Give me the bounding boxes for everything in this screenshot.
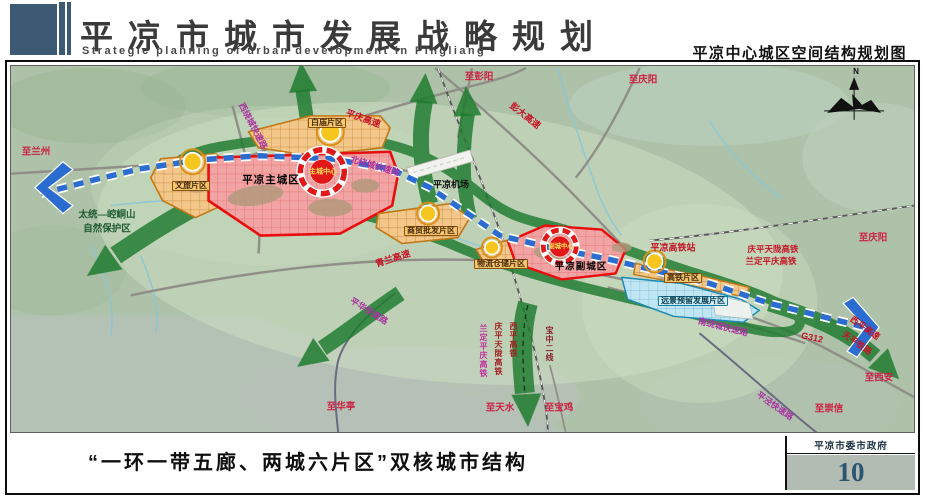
district-label-wuliu: 物流仓储片区 — [474, 259, 528, 269]
agency-label: 平凉市委市政府 — [787, 436, 915, 454]
district-label-shangmao: 商贸批发片区 — [404, 226, 458, 236]
node — [417, 203, 439, 225]
district-label-baimiao: 白庙片区 — [308, 118, 346, 128]
page-number: 10 — [787, 455, 915, 491]
node — [180, 149, 205, 174]
dest-qingyang-right: 至庆阳 — [859, 233, 888, 243]
hsr-station-label: 平凉高铁站 — [650, 244, 695, 253]
page-subtitle: Strategic planning of urban development … — [82, 45, 486, 57]
dest-lanzhou: 至兰州 — [22, 147, 51, 157]
district-label-gaotie: 高铁片区 — [664, 273, 702, 283]
nature-reserve-line1: 太统—崆峒山 — [78, 210, 135, 220]
nature-reserve-line2: 自然保护区 — [83, 224, 131, 234]
rail-label-landing-pingqing: 兰定平庆高铁 — [745, 257, 796, 266]
rail-label-xiping-v: 西平高铁 — [509, 322, 517, 358]
header-bar — [59, 2, 65, 55]
rail-label-landing-pingqing-v: 兰定平庆高铁 — [479, 324, 487, 378]
content-frame: 至兰州 至彭阳 至庆阳 至庆阳 至西安 至崇信 至华亭 至天水 至宝鸡 太统—崆… — [5, 60, 920, 495]
rail-label-qingping-tianlong: 庆平天陇高铁 — [747, 245, 798, 254]
planning-slide: 平凉市城市发展战略规划 Strategic planning of urban … — [0, 0, 925, 500]
footer: “一环一带五廊、两城六片区”双核城市结构 平凉市委市政府 10 — [10, 436, 915, 490]
planning-map: 至兰州 至彭阳 至庆阳 至庆阳 至西安 至崇信 至华亭 至天水 至宝鸡 太统—崆… — [10, 65, 915, 433]
sub-center-label: 副城中心 — [548, 244, 573, 250]
header-bar — [67, 2, 71, 55]
node — [482, 238, 502, 258]
rail-label-qingping-tianlong-v: 庆平天陇高铁 — [494, 322, 502, 376]
structure-caption: “一环一带五廊、两城六片区”双核城市结构 — [88, 446, 528, 475]
page-number-box: 平凉市委市政府 10 — [785, 436, 915, 490]
dest-chongxin: 至崇信 — [815, 404, 844, 414]
node — [644, 250, 666, 272]
rail-label-baozhong-v: 宝中二线 — [545, 326, 553, 362]
dest-tianshui: 至天水 — [486, 403, 515, 413]
district-label-yuanjing: 远景预留发展片区 — [658, 296, 728, 306]
airport-label: 平凉机场 — [433, 181, 469, 190]
district-label-wenlu: 文旅片区 — [172, 181, 210, 191]
dest-xian: 至西安 — [865, 373, 894, 383]
compass-n-label: N — [853, 68, 859, 76]
dest-baoji: 至宝鸡 — [545, 403, 574, 413]
main-city-label: 平凉主城区 — [242, 175, 300, 186]
dest-huating: 至华亭 — [327, 402, 356, 412]
dest-qingyang-top: 至庆阳 — [629, 75, 658, 85]
dest-pengyang: 至彭阳 — [465, 72, 494, 82]
main-center-label: 主城中心 — [309, 169, 337, 176]
sub-city-label: 平凉副城区 — [555, 262, 608, 272]
header-logo-block — [10, 4, 57, 55]
